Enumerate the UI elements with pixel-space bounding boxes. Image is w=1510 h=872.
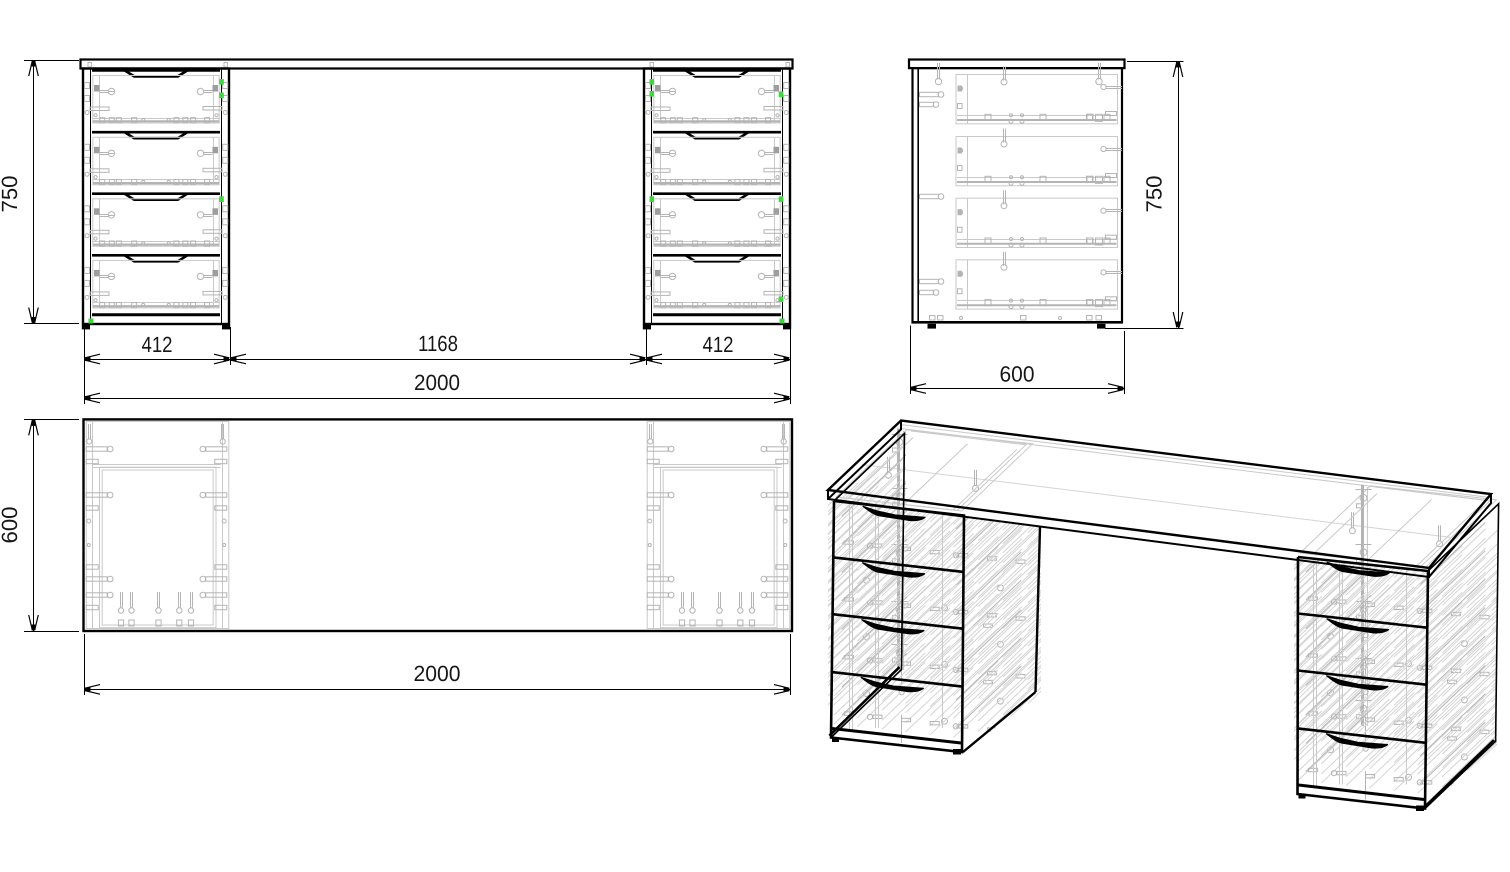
svg-text:750: 750	[1142, 176, 1167, 213]
svg-text:1168: 1168	[418, 331, 458, 356]
svg-text:412: 412	[703, 332, 734, 357]
svg-text:412: 412	[142, 332, 173, 357]
svg-text:2000: 2000	[414, 661, 461, 686]
svg-text:750: 750	[0, 176, 22, 213]
svg-text:2000: 2000	[414, 370, 460, 395]
svg-text:600: 600	[1000, 362, 1035, 387]
svg-text:600: 600	[0, 507, 22, 544]
